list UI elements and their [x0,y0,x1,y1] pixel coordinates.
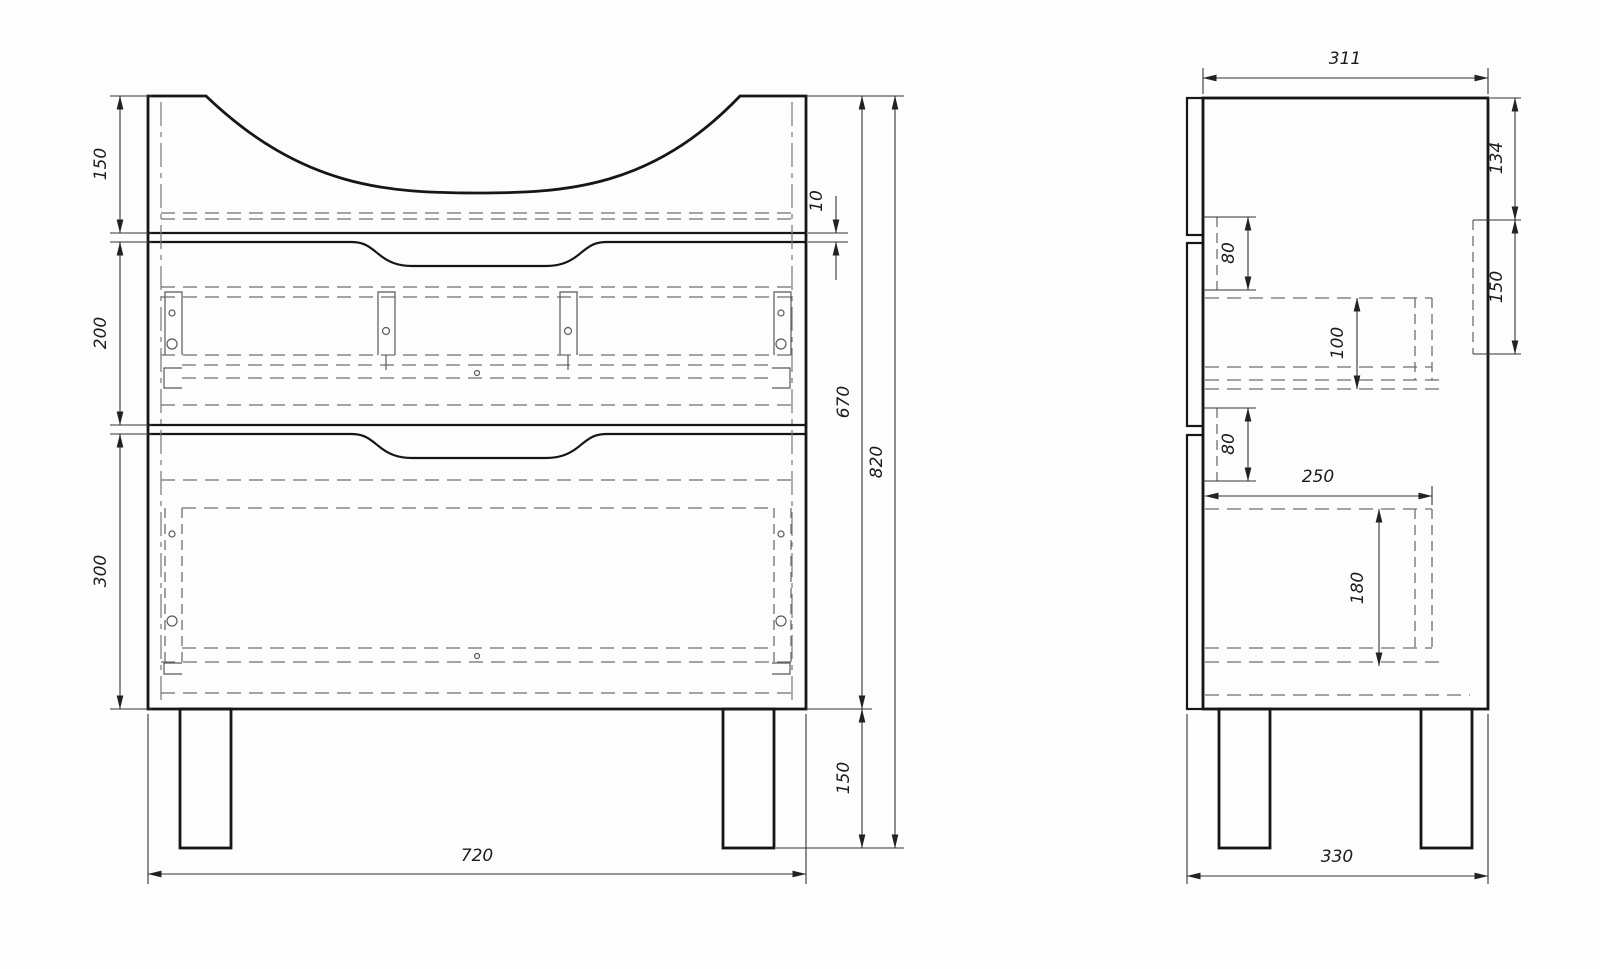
dim-label-front-overall-width: 720 [461,846,493,866]
dim-label-side-bracket-height: 150 [1487,271,1507,303]
drawer2-slide-end-right [772,663,790,674]
screw-hole [778,531,784,537]
side-front-leg [1219,709,1270,848]
dim-label-front-leg-height: 150 [834,762,854,794]
dim-label-side-drawer2-box-height: 180 [1348,572,1368,604]
side-drawer1-front-panel [1187,243,1203,426]
dim-label-side-upper-rail: 80 [1219,242,1239,264]
screw-hole [169,531,175,537]
front-fittings [164,292,791,674]
front-right-leg [723,709,774,848]
screw-hole [475,371,480,376]
side-view: 311 134 150 80 100 80 250 [1187,49,1521,884]
screw-hole [778,310,784,316]
dim-label-side-carcass-depth: 311 [1329,49,1361,69]
screw-hole [169,310,175,316]
side-hidden-lines [1205,217,1473,695]
technical-drawing-canvas: 150 200 300 10 670 150 820 720 [0,0,1600,969]
dim-label-front-top-section-height: 150 [91,148,111,180]
screw-hole [167,339,177,349]
front-body-outline [148,96,806,709]
side-body-outline [1203,98,1488,709]
front-carcass-outline [148,96,806,848]
dim-label-side-drawer1-box-height: 100 [1328,327,1348,359]
front-view: 150 200 300 10 670 150 820 720 [91,96,904,884]
side-back-leg [1421,709,1472,848]
dim-label-side-bracket-offset: 134 [1487,142,1507,174]
drawer1-slide-bracket-center-left [378,292,395,355]
side-top-front-panel [1187,98,1203,235]
dim-label-front-carcass-height: 670 [834,386,854,418]
dim-label-side-drawer-box-depth: 250 [1302,467,1334,487]
drawer2-slide-end-left [164,663,182,674]
side-carcass-outline [1187,98,1488,848]
dim-label-front-overall-height: 820 [867,446,887,478]
screw-hole [776,616,786,626]
drawer1-slide-end-left [164,368,182,388]
dim-label-front-middle-drawer-height: 200 [91,317,111,349]
screw-hole [167,616,177,626]
drawer1-slide-bracket-center-right [560,292,577,355]
front-dimensions: 150 200 300 10 670 150 820 720 [91,96,904,884]
dim-label-front-bottom-drawer-height: 300 [91,555,111,587]
screw-hole [475,654,480,659]
dim-label-side-lower-rail: 80 [1219,433,1239,455]
drawing-page: 150 200 300 10 670 150 820 720 [0,0,1600,969]
front-drawer2-top-edge-with-handle [148,434,806,458]
dim-label-front-panel-gap: 10 [807,190,827,212]
screw-hole [565,328,572,335]
screw-hole [383,328,390,335]
front-drawer1-top-edge-with-handle [148,242,806,266]
drawer1-slide-end-right [772,368,790,388]
screw-hole [776,339,786,349]
front-left-leg [180,709,231,848]
dim-label-side-overall-depth: 330 [1321,847,1353,867]
side-drawer2-front-panel [1187,435,1203,709]
